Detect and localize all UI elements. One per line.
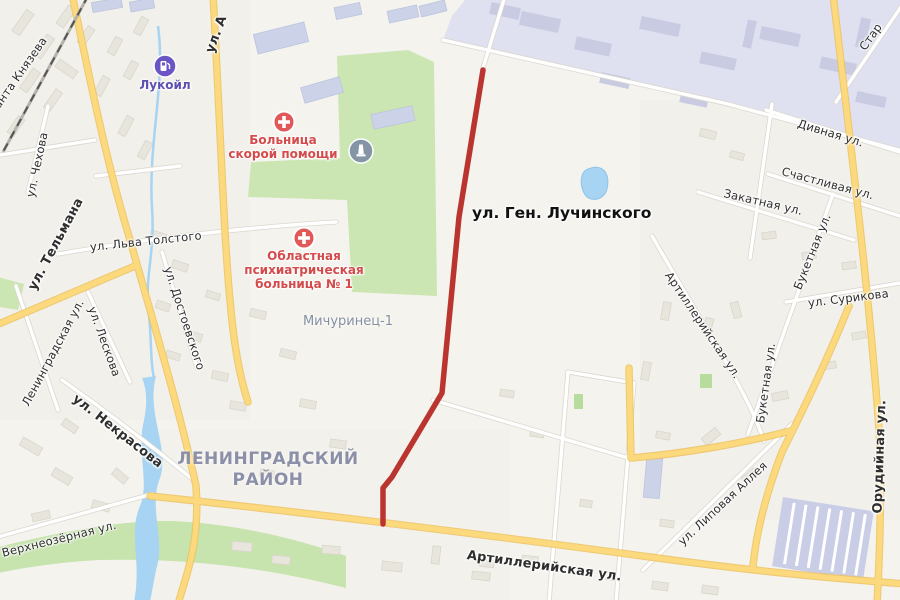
- monument-icon[interactable]: [348, 138, 372, 162]
- er-hospital-label[interactable]: Больница скорой помощи: [228, 134, 337, 162]
- fuel-station-label[interactable]: Лукойл: [139, 79, 190, 93]
- warehouse-building: [772, 497, 874, 581]
- district-label: ЛЕНИНГРАДСКИЙ РАЙОН: [177, 449, 358, 492]
- psy-hospital-label[interactable]: Областная психиатрическая больница № 1: [244, 250, 363, 291]
- fuel-station-icon[interactable]: [153, 54, 177, 78]
- er-hospital-icon[interactable]: [272, 110, 296, 134]
- map-canvas[interactable]: ул. А анта Князева ул. Чехова ул. Тельма…: [0, 0, 900, 600]
- map-base: [0, 0, 900, 600]
- psy-hospital-icon[interactable]: [292, 226, 316, 250]
- highlighted-street-label: ул. Ген. Лучинского: [472, 204, 651, 222]
- neighborhood-label: Мичуринец-1: [303, 314, 393, 329]
